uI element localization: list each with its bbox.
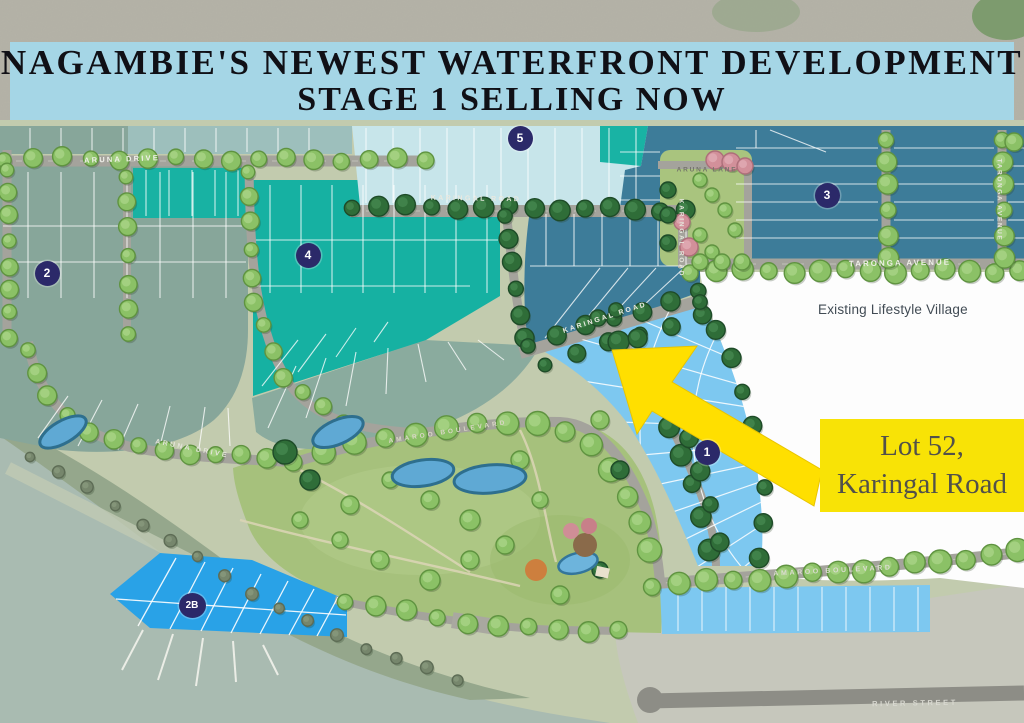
callout-line2: Karingal Road <box>837 466 1007 503</box>
lot-52-callout: Lot 52, Karingal Road <box>820 419 1024 512</box>
banner-line1: NAGAMBIE'S NEWEST WATERFRONT DEVELOPMENT <box>1 44 1023 82</box>
street-label-karingal-road-vertical: KARINGAL ROAD <box>678 199 685 278</box>
existing-lifestyle-village-label: Existing Lifestyle Village <box>818 302 968 317</box>
stage-marker-3: 3 <box>815 183 840 208</box>
street-label-river-street: RIVER STREET <box>872 698 958 708</box>
stage-marker-1: 1 <box>695 440 720 465</box>
street-label-taronga-avenue-vertical: TARONGA AVENUE <box>996 159 1003 242</box>
banner-line2: STAGE 1 SELLING NOW <box>297 82 726 119</box>
lots-teal-wedge <box>600 126 648 166</box>
masterplan-flyer: NAGAMBIE'S NEWEST WATERFRONT DEVELOPMENT… <box>0 0 1024 723</box>
callout-line1: Lot 52, <box>880 428 964 465</box>
street-label-aruna-lane: ARUNA LANE <box>677 167 738 174</box>
street-label-taronga-avenue: TARONGA AVENUE <box>849 258 951 269</box>
lots-pale-north <box>128 126 352 154</box>
river-street-road <box>648 693 1024 701</box>
stage-marker-2: 2 <box>35 261 60 286</box>
stage-marker-5: 5 <box>508 126 533 151</box>
stage-marker-4: 4 <box>296 243 321 268</box>
river-street-culdesac <box>637 687 663 713</box>
stage-marker-2B: 2B <box>179 593 206 618</box>
banner: NAGAMBIE'S NEWEST WATERFRONT DEVELOPMENT… <box>10 42 1014 120</box>
lots-teal-small <box>133 168 247 218</box>
lots-stage1-south-row <box>660 585 930 634</box>
